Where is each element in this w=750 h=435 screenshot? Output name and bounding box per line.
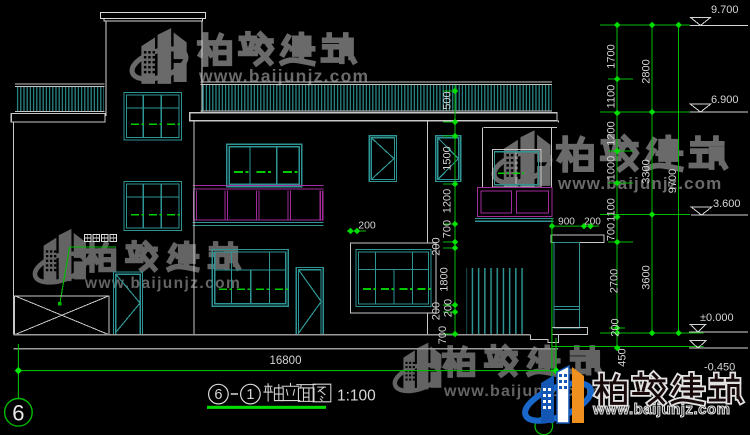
svg-text:1500: 1500: [441, 146, 453, 170]
svg-text:200: 200: [442, 299, 454, 317]
svg-text:1200: 1200: [606, 121, 618, 145]
svg-text:1:100: 1:100: [337, 388, 376, 405]
svg-text:1000: 1000: [606, 156, 618, 180]
svg-text:700: 700: [606, 223, 618, 241]
svg-text:6: 6: [214, 387, 222, 403]
svg-text:www.baijunjz.com: www.baijunjz.com: [592, 401, 730, 418]
svg-text:500: 500: [441, 91, 453, 109]
svg-text:700: 700: [437, 326, 449, 344]
svg-text:9700: 9700: [667, 169, 679, 193]
svg-text:3600: 3600: [640, 265, 652, 289]
svg-text:200: 200: [430, 237, 442, 255]
svg-text:2800: 2800: [640, 59, 652, 83]
svg-text:16800: 16800: [270, 355, 302, 367]
svg-text:3300: 3300: [640, 159, 652, 183]
svg-text:9.700: 9.700: [711, 4, 739, 16]
svg-text:200: 200: [609, 318, 621, 336]
svg-text:www.baijunjz.com: www.baijunjz.com: [198, 66, 369, 86]
svg-text:3.600: 3.600: [713, 198, 741, 210]
svg-text:1700: 1700: [606, 44, 618, 68]
svg-text:1200: 1200: [441, 189, 453, 213]
svg-text:6: 6: [12, 401, 24, 426]
svg-text:www.baijunjz.com: www.baijunjz.com: [84, 275, 241, 292]
svg-text:200: 200: [430, 302, 442, 320]
svg-text:±0.000: ±0.000: [700, 312, 734, 324]
svg-text:200: 200: [584, 217, 601, 228]
svg-text:1100: 1100: [606, 85, 618, 109]
svg-text:200: 200: [358, 220, 376, 232]
svg-text:2700: 2700: [609, 269, 621, 293]
svg-text:6.900: 6.900: [711, 94, 739, 106]
svg-text:1800: 1800: [438, 267, 450, 291]
svg-text:700: 700: [441, 220, 453, 238]
svg-text:1: 1: [246, 387, 254, 403]
svg-text:450: 450: [616, 348, 628, 366]
svg-text:1100: 1100: [606, 198, 618, 222]
svg-text:900: 900: [558, 217, 575, 228]
